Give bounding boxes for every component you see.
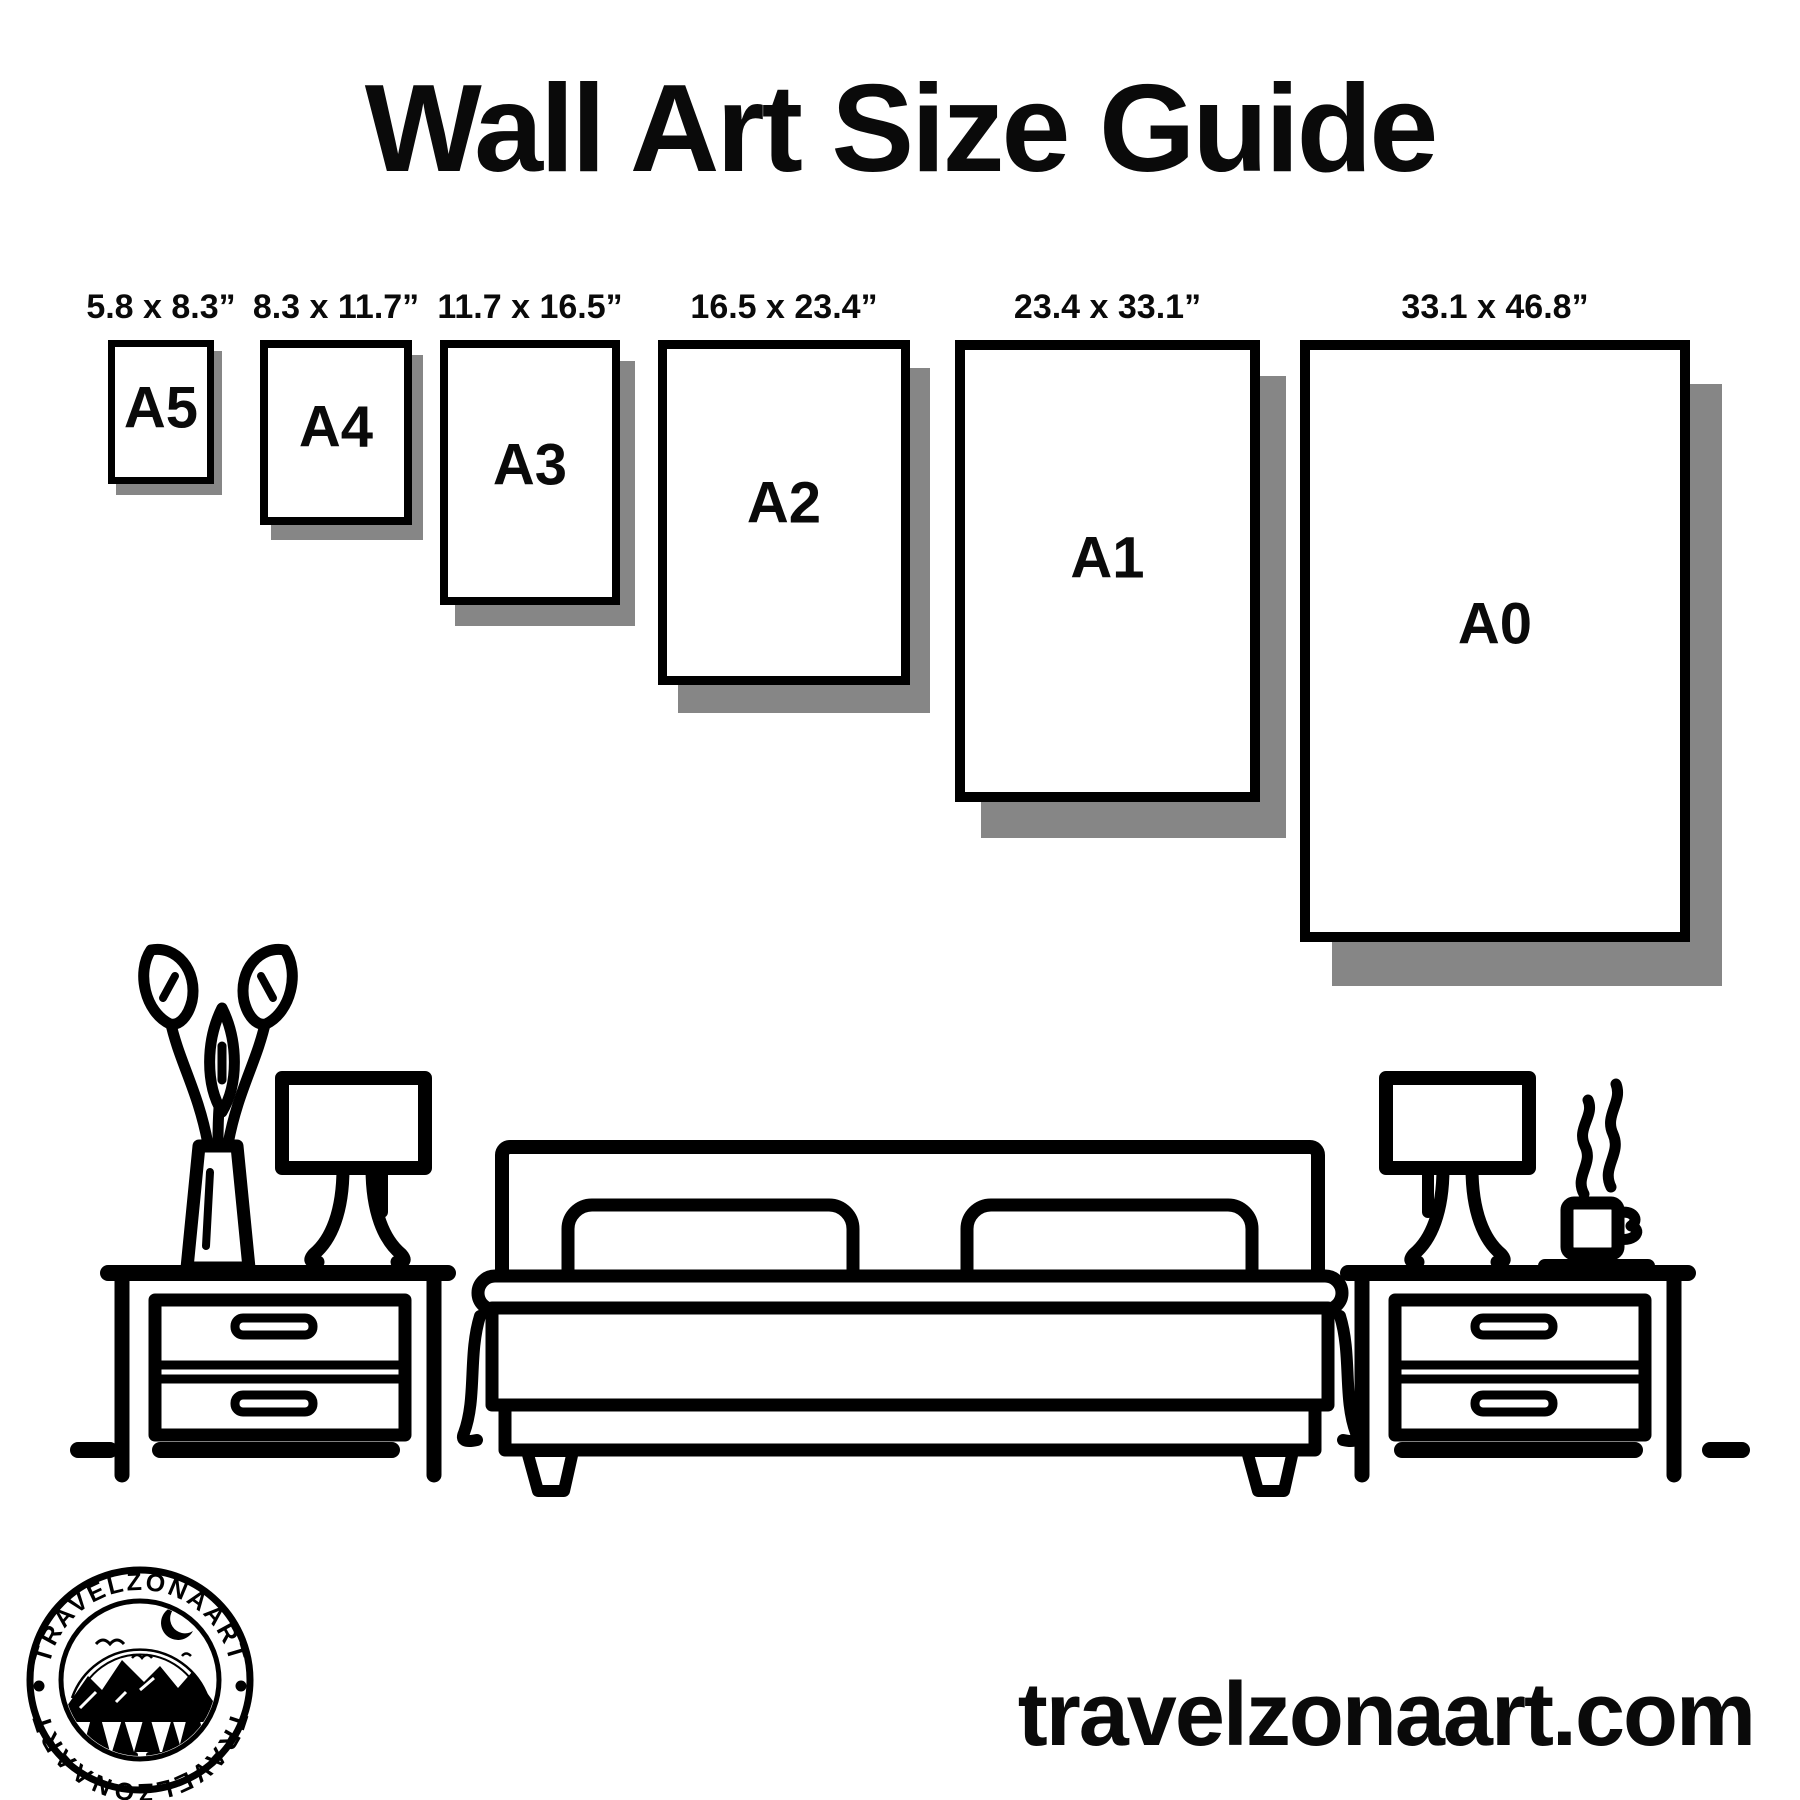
logo-separator-dot [34,1681,45,1692]
lamp-shade [1386,1078,1529,1168]
bird-icon [182,1654,191,1657]
plant-vase [144,949,293,1268]
bedroom-illustration [60,850,1760,1550]
frame-a2: A2 [658,340,910,685]
frame-a4: A4 [260,340,412,525]
logo-arc-text-top: TRAVELZONAART [28,1568,252,1666]
steam [1608,1084,1617,1187]
frame-a3: A3 [440,340,620,605]
table-lamp-left [282,1078,425,1262]
frame-a5: A5 [108,340,214,484]
coffee-mug-with-steam [1545,1084,1648,1266]
bed-leg-left [527,1451,573,1491]
mug-body [1567,1203,1618,1254]
duvet [492,1308,1328,1405]
size-name-a0: A0 [1310,590,1680,657]
size-name-a4: A4 [268,394,404,461]
size-name-a3: A3 [448,432,612,499]
frame-a1: A1 [955,340,1260,802]
logo-arc-text-bottom: TRAVELZONAART [27,1709,253,1800]
bed-leg-right [1247,1451,1293,1491]
lamp-shade [282,1078,425,1168]
steam [1581,1100,1589,1194]
bed-base [505,1405,1315,1450]
dimension-label-a2: 16.5 x 23.4” [618,288,950,330]
bird-icon [96,1640,124,1644]
table-lamp-right [1386,1078,1529,1262]
dimension-label-a1: 23.4 x 33.1” [915,288,1300,330]
website-url: travelzonaart.com [1018,1664,1754,1767]
size-name-a2: A2 [667,469,901,536]
vase [187,1146,249,1268]
blanket-drape-left [463,1316,480,1441]
double-bed [463,1147,1357,1491]
logo-separator-dot [236,1681,247,1692]
page-title: Wall Art Size Guide [0,58,1800,200]
brand-logo: TRAVELZONAART TRAVELZONAART [20,1560,260,1800]
wall-art-size-guide-poster: Wall Art Size Guide 5.8 x 8.3” 8.3 x 11.… [0,0,1800,1800]
size-name-a1: A1 [965,524,1250,591]
dimension-label-a0: 33.1 x 46.8” [1260,288,1730,330]
size-name-a5: A5 [115,375,207,442]
